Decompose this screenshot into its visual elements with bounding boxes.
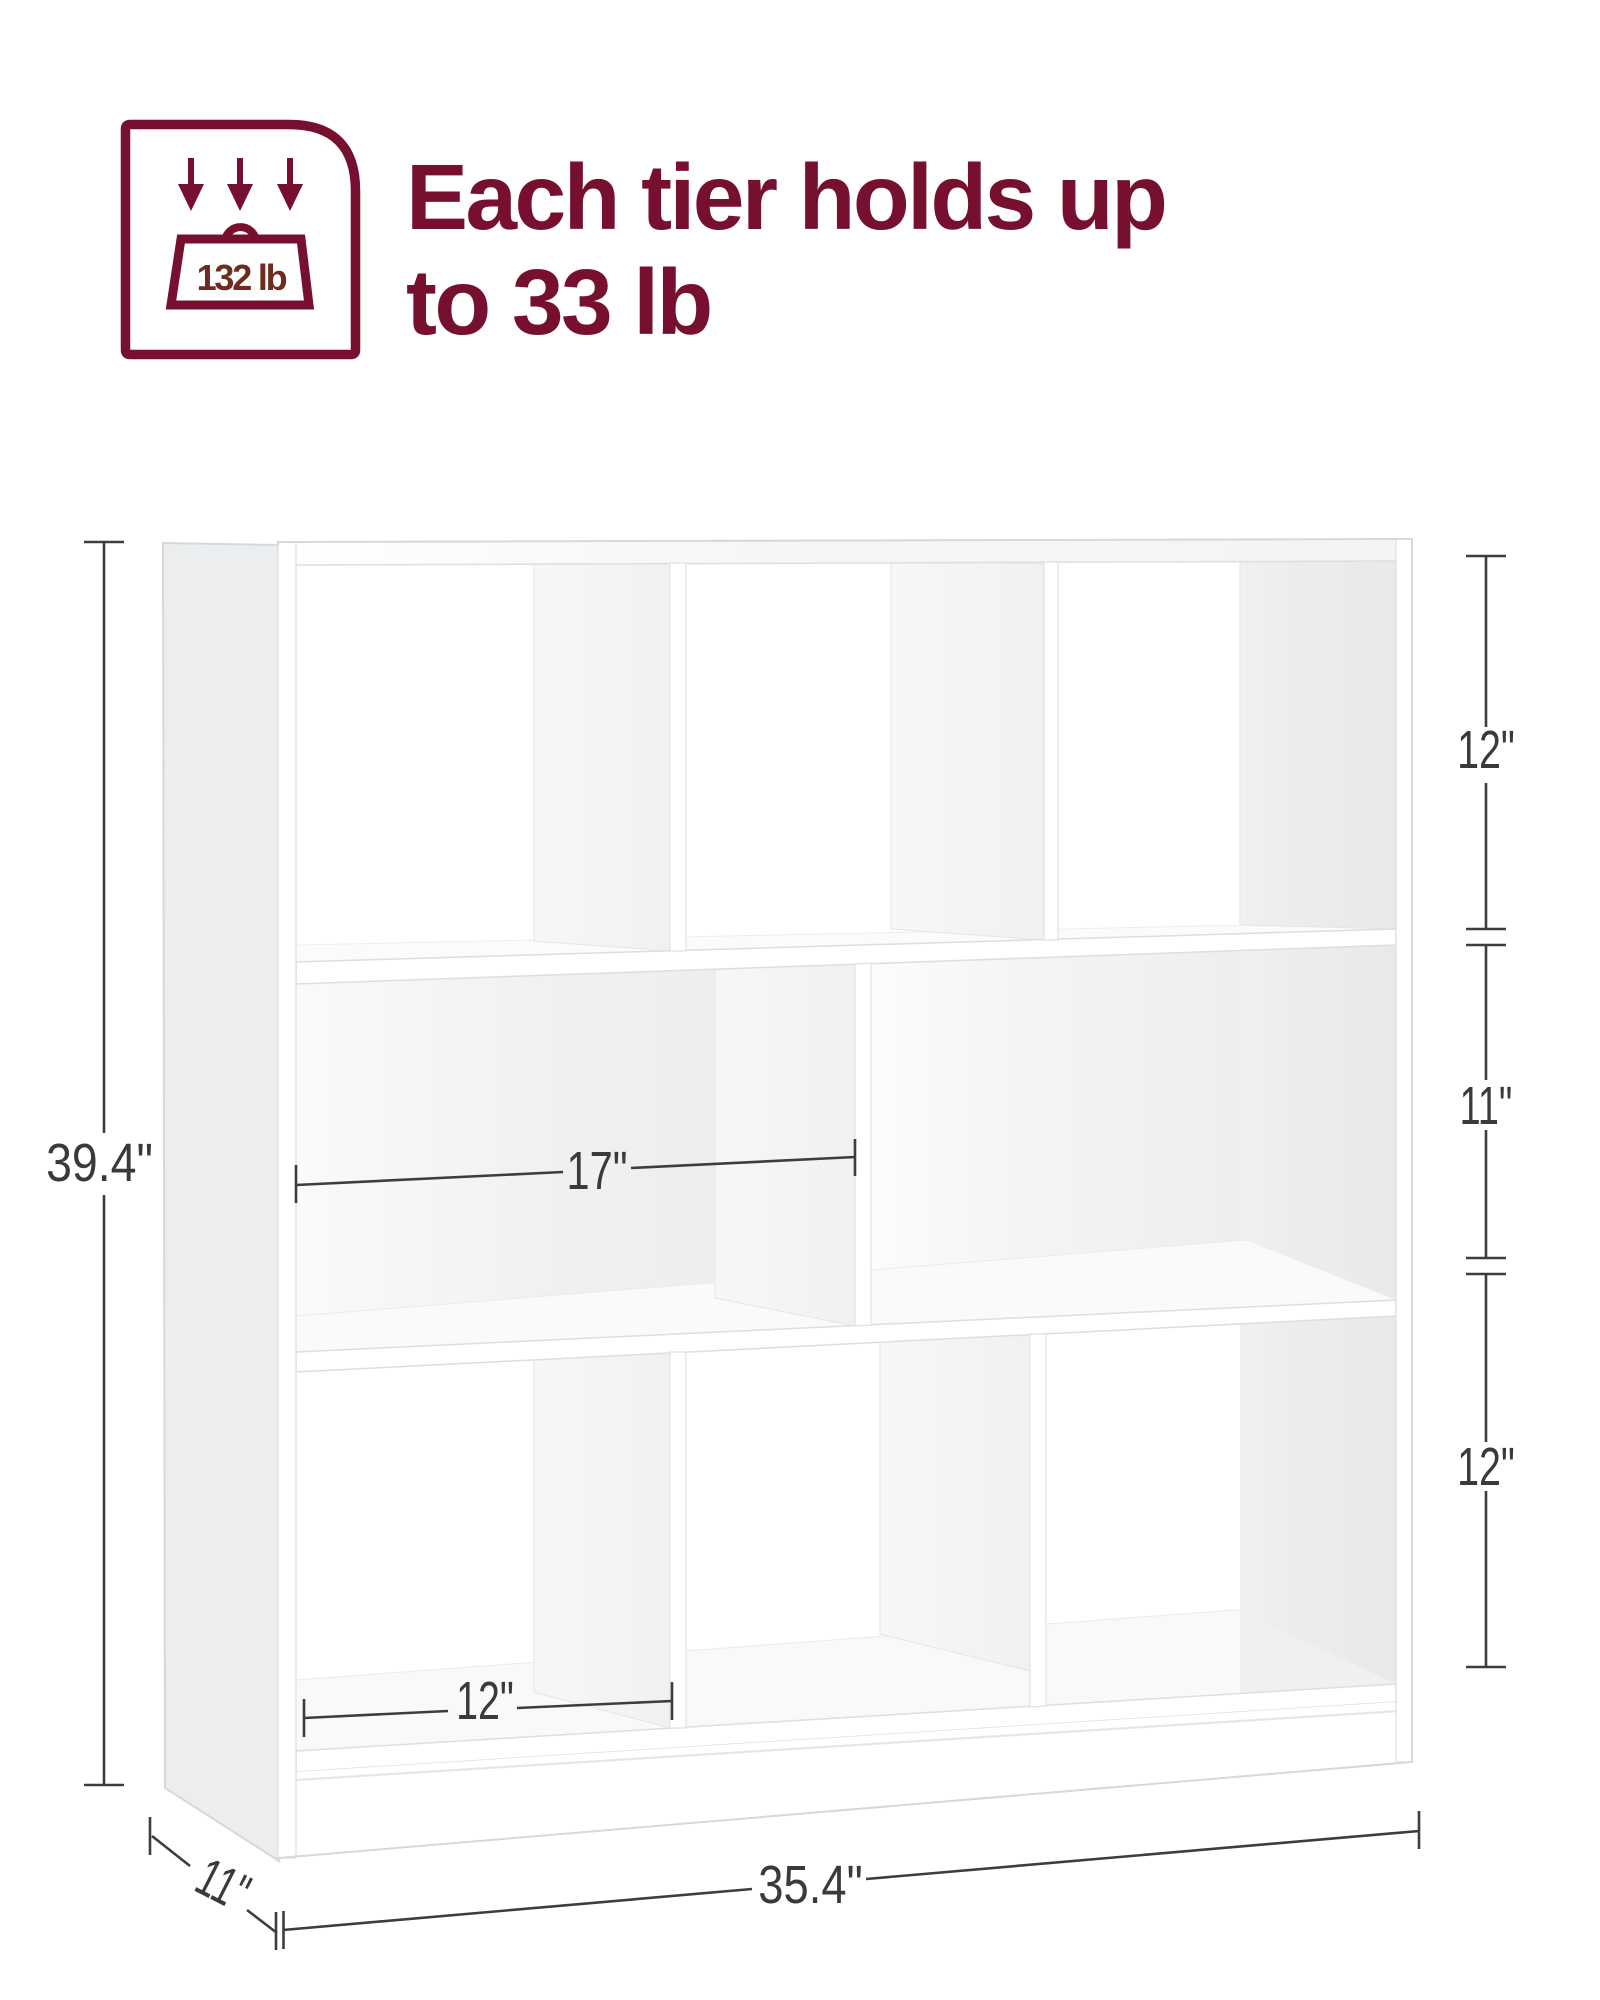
- svg-text:to 33 lb: to 33 lb: [406, 250, 711, 354]
- svg-text:35.4": 35.4": [758, 1854, 862, 1915]
- svg-text:12": 12": [456, 1671, 514, 1732]
- svg-text:17": 17": [566, 1141, 627, 1202]
- svg-text:Each tier holds up: Each tier holds up: [406, 145, 1165, 249]
- svg-text:132 lb: 132 lb: [197, 257, 287, 298]
- svg-text:12": 12": [1457, 720, 1515, 781]
- svg-text:12": 12": [1457, 1437, 1515, 1498]
- svg-text:39.4": 39.4": [46, 1132, 153, 1193]
- svg-text:11": 11": [1460, 1075, 1513, 1135]
